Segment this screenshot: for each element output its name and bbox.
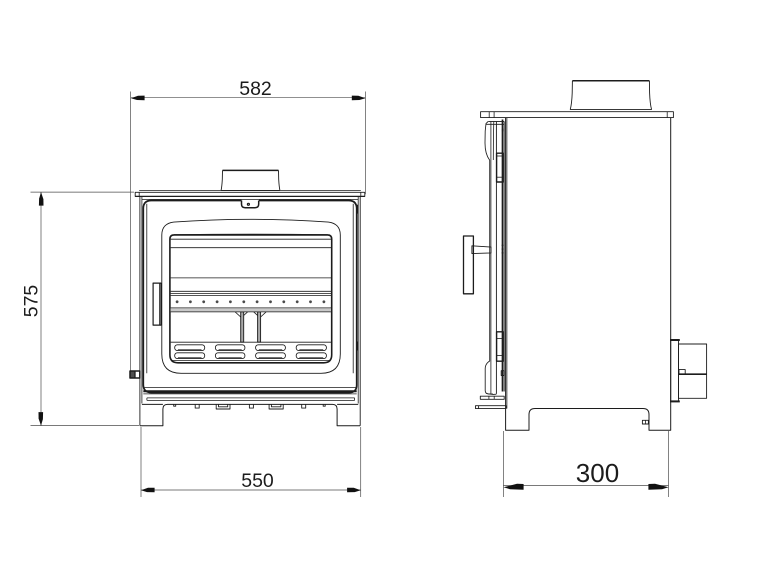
svg-text:550: 550 <box>241 470 274 492</box>
svg-text:300: 300 <box>576 458 619 488</box>
svg-text:582: 582 <box>239 78 272 100</box>
svg-text:575: 575 <box>21 285 43 318</box>
